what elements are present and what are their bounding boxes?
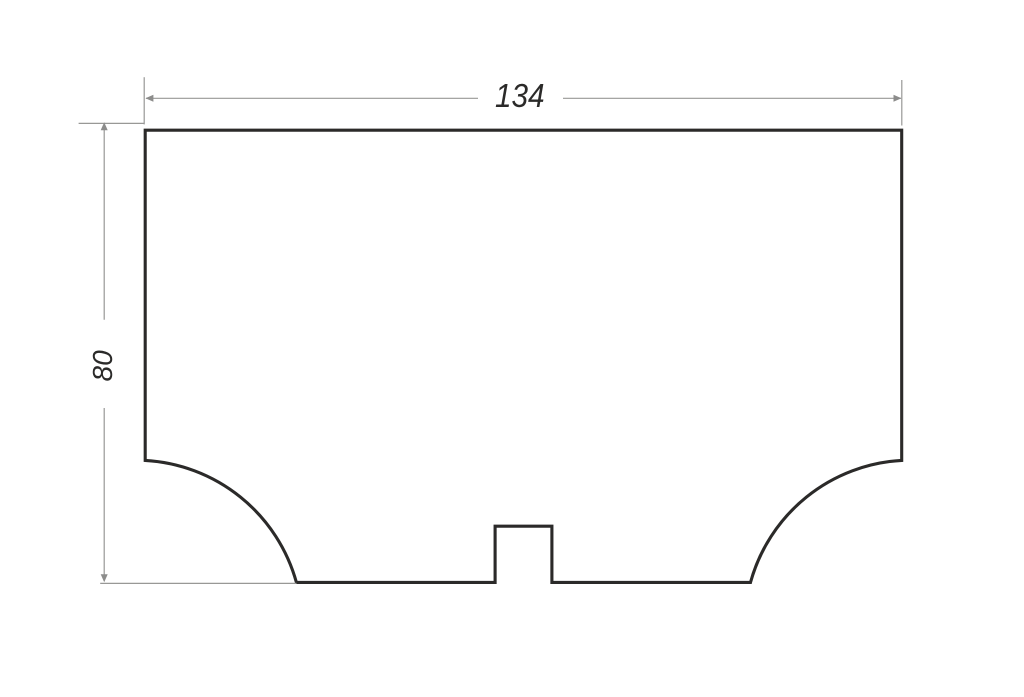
svg-text:134: 134 [495,77,545,114]
svg-text:80: 80 [87,350,118,382]
